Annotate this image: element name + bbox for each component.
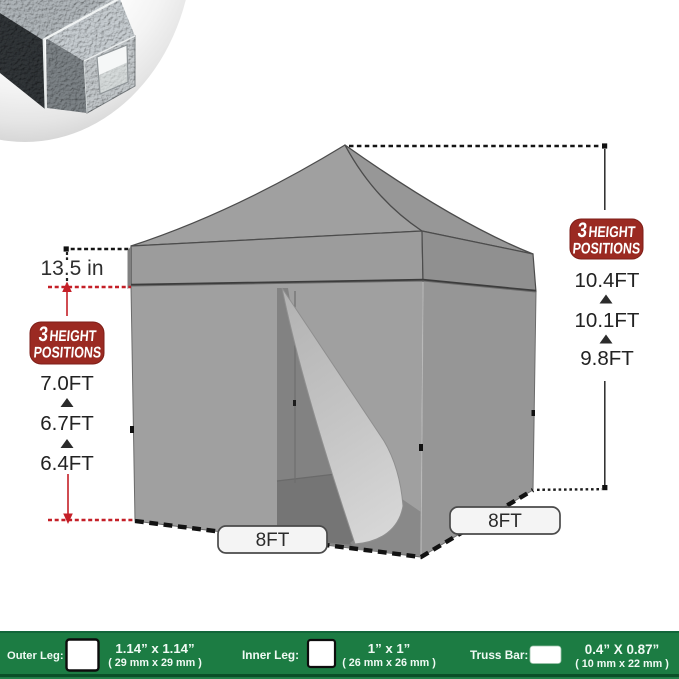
svg-text:8FT: 8FT bbox=[256, 530, 290, 551]
svg-text:( 10 mm x 22 mm ): ( 10 mm x 22 mm ) bbox=[575, 658, 669, 670]
svg-text:Truss Bar:: Truss Bar: bbox=[470, 648, 528, 662]
svg-text:8FT: 8FT bbox=[488, 511, 522, 532]
svg-text:7.0FT: 7.0FT bbox=[40, 372, 94, 395]
svg-text:9.8FT: 9.8FT bbox=[580, 347, 634, 370]
svg-text:10.4FT: 10.4FT bbox=[575, 269, 640, 292]
svg-text:0.4” X 0.87”: 0.4” X 0.87” bbox=[585, 642, 659, 657]
svg-text:1.14” x 1.14”: 1.14” x 1.14” bbox=[115, 641, 194, 656]
svg-text:10.1FT: 10.1FT bbox=[575, 309, 640, 332]
svg-text:1” x 1”: 1” x 1” bbox=[368, 641, 411, 656]
svg-text:( 26 mm x 26 mm ): ( 26 mm x 26 mm ) bbox=[342, 657, 436, 669]
svg-text:6.7FT: 6.7FT bbox=[40, 412, 94, 435]
svg-text:Inner Leg:: Inner Leg: bbox=[242, 648, 299, 662]
svg-text:POSITIONS: POSITIONS bbox=[572, 239, 641, 257]
svg-text:6.4FT: 6.4FT bbox=[40, 452, 94, 475]
svg-text:Outer Leg:: Outer Leg: bbox=[7, 650, 64, 662]
svg-text:13.5 in: 13.5 in bbox=[40, 257, 103, 280]
svg-text:POSITIONS: POSITIONS bbox=[33, 343, 102, 361]
svg-text:( 29 mm x 29 mm ): ( 29 mm x 29 mm ) bbox=[108, 657, 202, 669]
